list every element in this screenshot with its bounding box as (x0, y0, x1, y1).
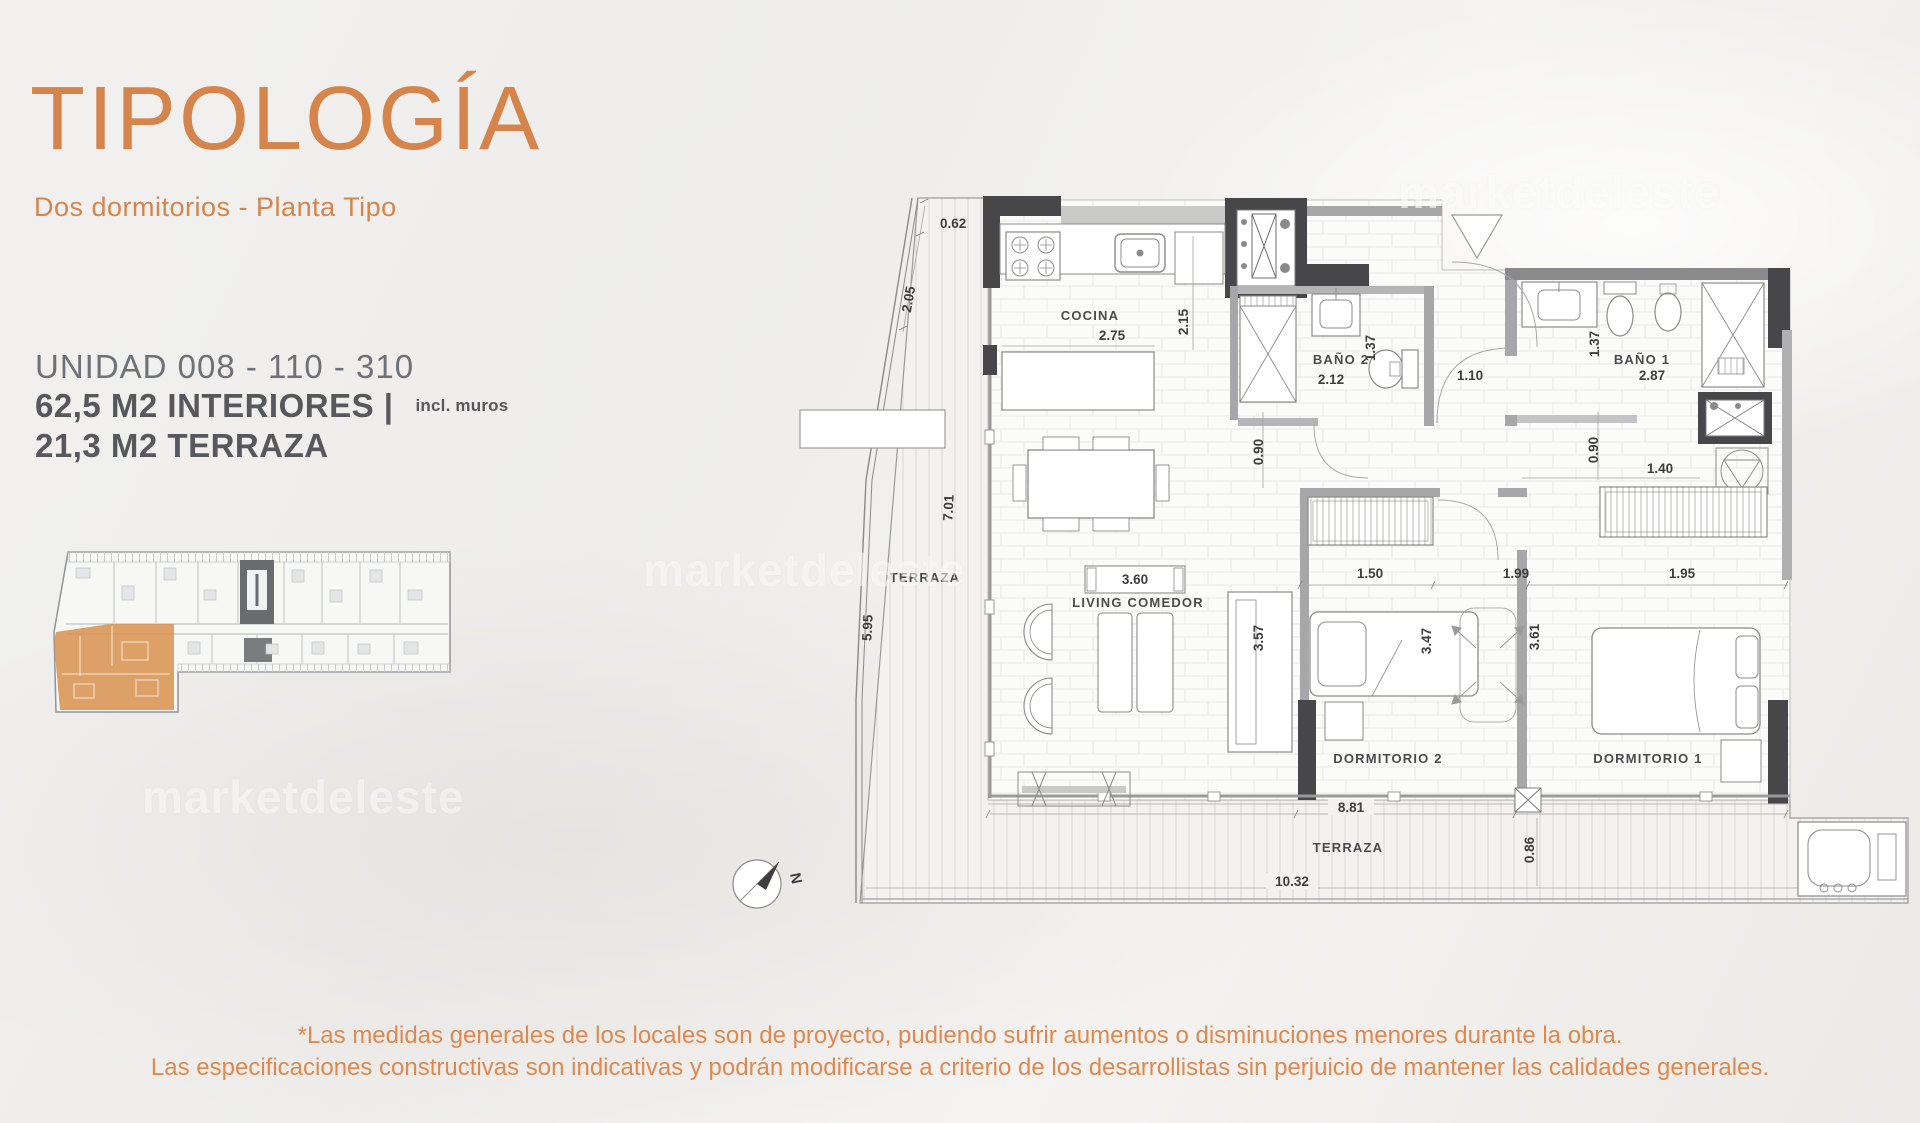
unit-interior-note: incl. muros (416, 396, 509, 416)
dim-3-60: 3.60 (1122, 572, 1148, 587)
dim-2-75: 2.75 (1099, 328, 1126, 343)
dim-1-37-bano1: 1.37 (1587, 331, 1602, 357)
floor-plan: 0.62 2.05 7.01 5.95 2.75 2.15 2.12 1.37 … (600, 160, 1920, 960)
dim-0-86: 0.86 (1522, 836, 1537, 863)
dim-1-95: 1.95 (1669, 566, 1696, 581)
dim-1-50: 1.50 (1357, 566, 1383, 581)
key-plan-highlight (54, 624, 174, 710)
room-label-terraza-bottom: TERRAZA (1313, 840, 1384, 855)
dim-5-95: 5.95 (859, 614, 875, 642)
room-label-dorm2: DORMITORIO 2 (1333, 751, 1443, 766)
north-compass-icon: N (733, 860, 805, 908)
dim-2-87: 2.87 (1639, 368, 1665, 383)
dim-7-01: 7.01 (940, 494, 956, 522)
page-subtitle: Dos dormitorios - Planta Tipo (34, 192, 397, 223)
page-title: TIPOLOGÍA (30, 72, 542, 167)
north-label: N (786, 871, 805, 885)
dim-2-15: 2.15 (1176, 308, 1191, 335)
dim-2-12: 2.12 (1318, 372, 1344, 387)
key-plan (52, 546, 458, 720)
dim-0-90-b: 0.90 (1586, 437, 1601, 463)
disclaimer-line-1: *Las medidas generales de los locales so… (0, 1022, 1920, 1050)
entry-marker (1452, 215, 1502, 258)
dim-3-61: 3.61 (1527, 623, 1542, 650)
room-label-bano2: BAÑO 2 (1313, 352, 1369, 367)
dim-0-90-a: 0.90 (1251, 439, 1266, 465)
dim-8-81: 8.81 (1338, 800, 1365, 815)
unit-interior-area: 62,5 M2 INTERIORES | (35, 387, 394, 425)
room-label-cocina: COCINA (1061, 308, 1119, 323)
room-label-terraza-left: TERRAZA (890, 570, 961, 585)
watermark-bottom-left: marketdeleste (142, 770, 464, 824)
room-label-living: LIVING COMEDOR (1072, 595, 1204, 610)
jacuzzi (1798, 822, 1906, 896)
unit-terrace-area: 21,3 M2 TERRAZA (35, 427, 329, 465)
unit-name: UNIDAD 008 - 110 - 310 (35, 348, 414, 386)
unit-interior-row: 62,5 M2 INTERIORES | incl. muros (35, 387, 508, 425)
dim-3-57: 3.57 (1251, 625, 1266, 651)
dim-1-99: 1.99 (1503, 566, 1529, 581)
room-label-bano1: BAÑO 1 (1614, 352, 1670, 367)
dim-0-62: 0.62 (940, 216, 966, 231)
dim-10-32: 10.32 (1275, 874, 1309, 889)
dim-1-10: 1.10 (1457, 368, 1483, 383)
room-label-dorm1: DORMITORIO 1 (1593, 751, 1703, 766)
dim-3-47: 3.47 (1419, 628, 1434, 654)
disclaimer-line-2: Las especificaciones constructivas son i… (0, 1054, 1920, 1082)
dim-1-40: 1.40 (1647, 461, 1673, 476)
